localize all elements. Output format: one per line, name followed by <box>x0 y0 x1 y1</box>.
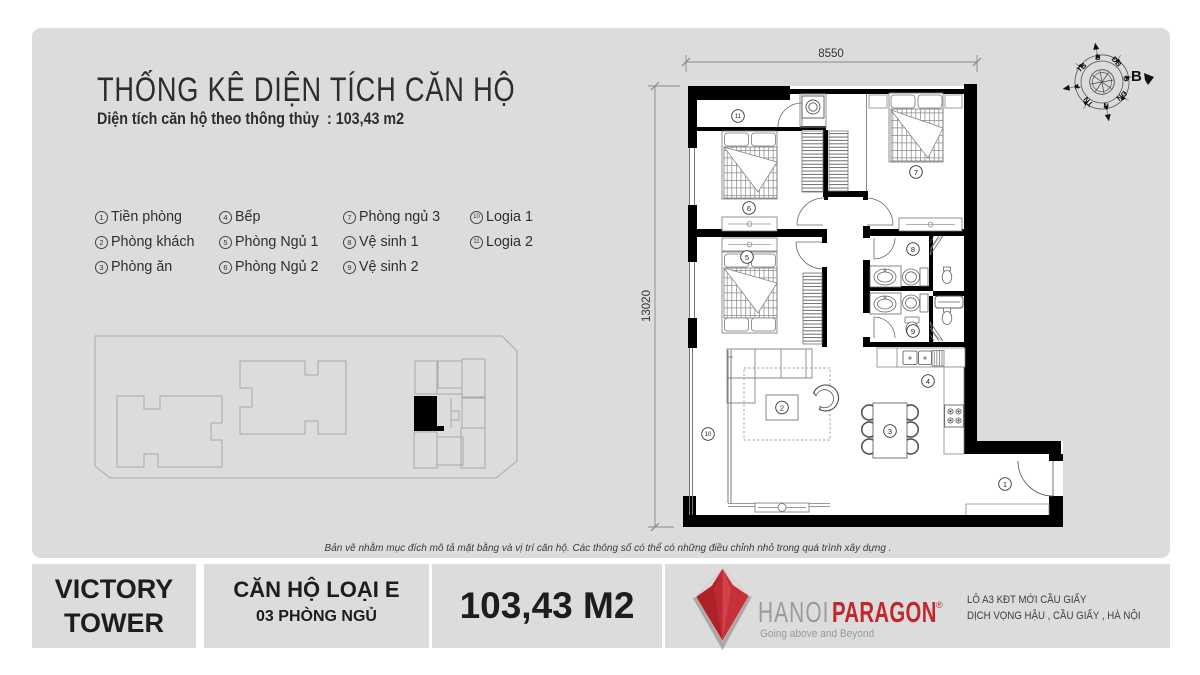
svg-text:B: B <box>1131 68 1142 85</box>
svg-text:7: 7 <box>914 168 918 177</box>
svg-text:3: 3 <box>888 427 892 436</box>
svg-text:10: 10 <box>705 432 712 438</box>
svg-text:11: 11 <box>735 114 742 120</box>
svg-text:8: 8 <box>911 245 915 254</box>
svg-text:9: 9 <box>911 327 915 336</box>
svg-text:5: 5 <box>745 253 749 262</box>
svg-text:2: 2 <box>780 403 784 412</box>
svg-text:1: 1 <box>1003 480 1007 489</box>
svg-text:4: 4 <box>926 377 930 386</box>
svg-text:13020: 13020 <box>641 290 653 322</box>
svg-text:6: 6 <box>747 204 751 213</box>
svg-text:8550: 8550 <box>818 48 844 60</box>
